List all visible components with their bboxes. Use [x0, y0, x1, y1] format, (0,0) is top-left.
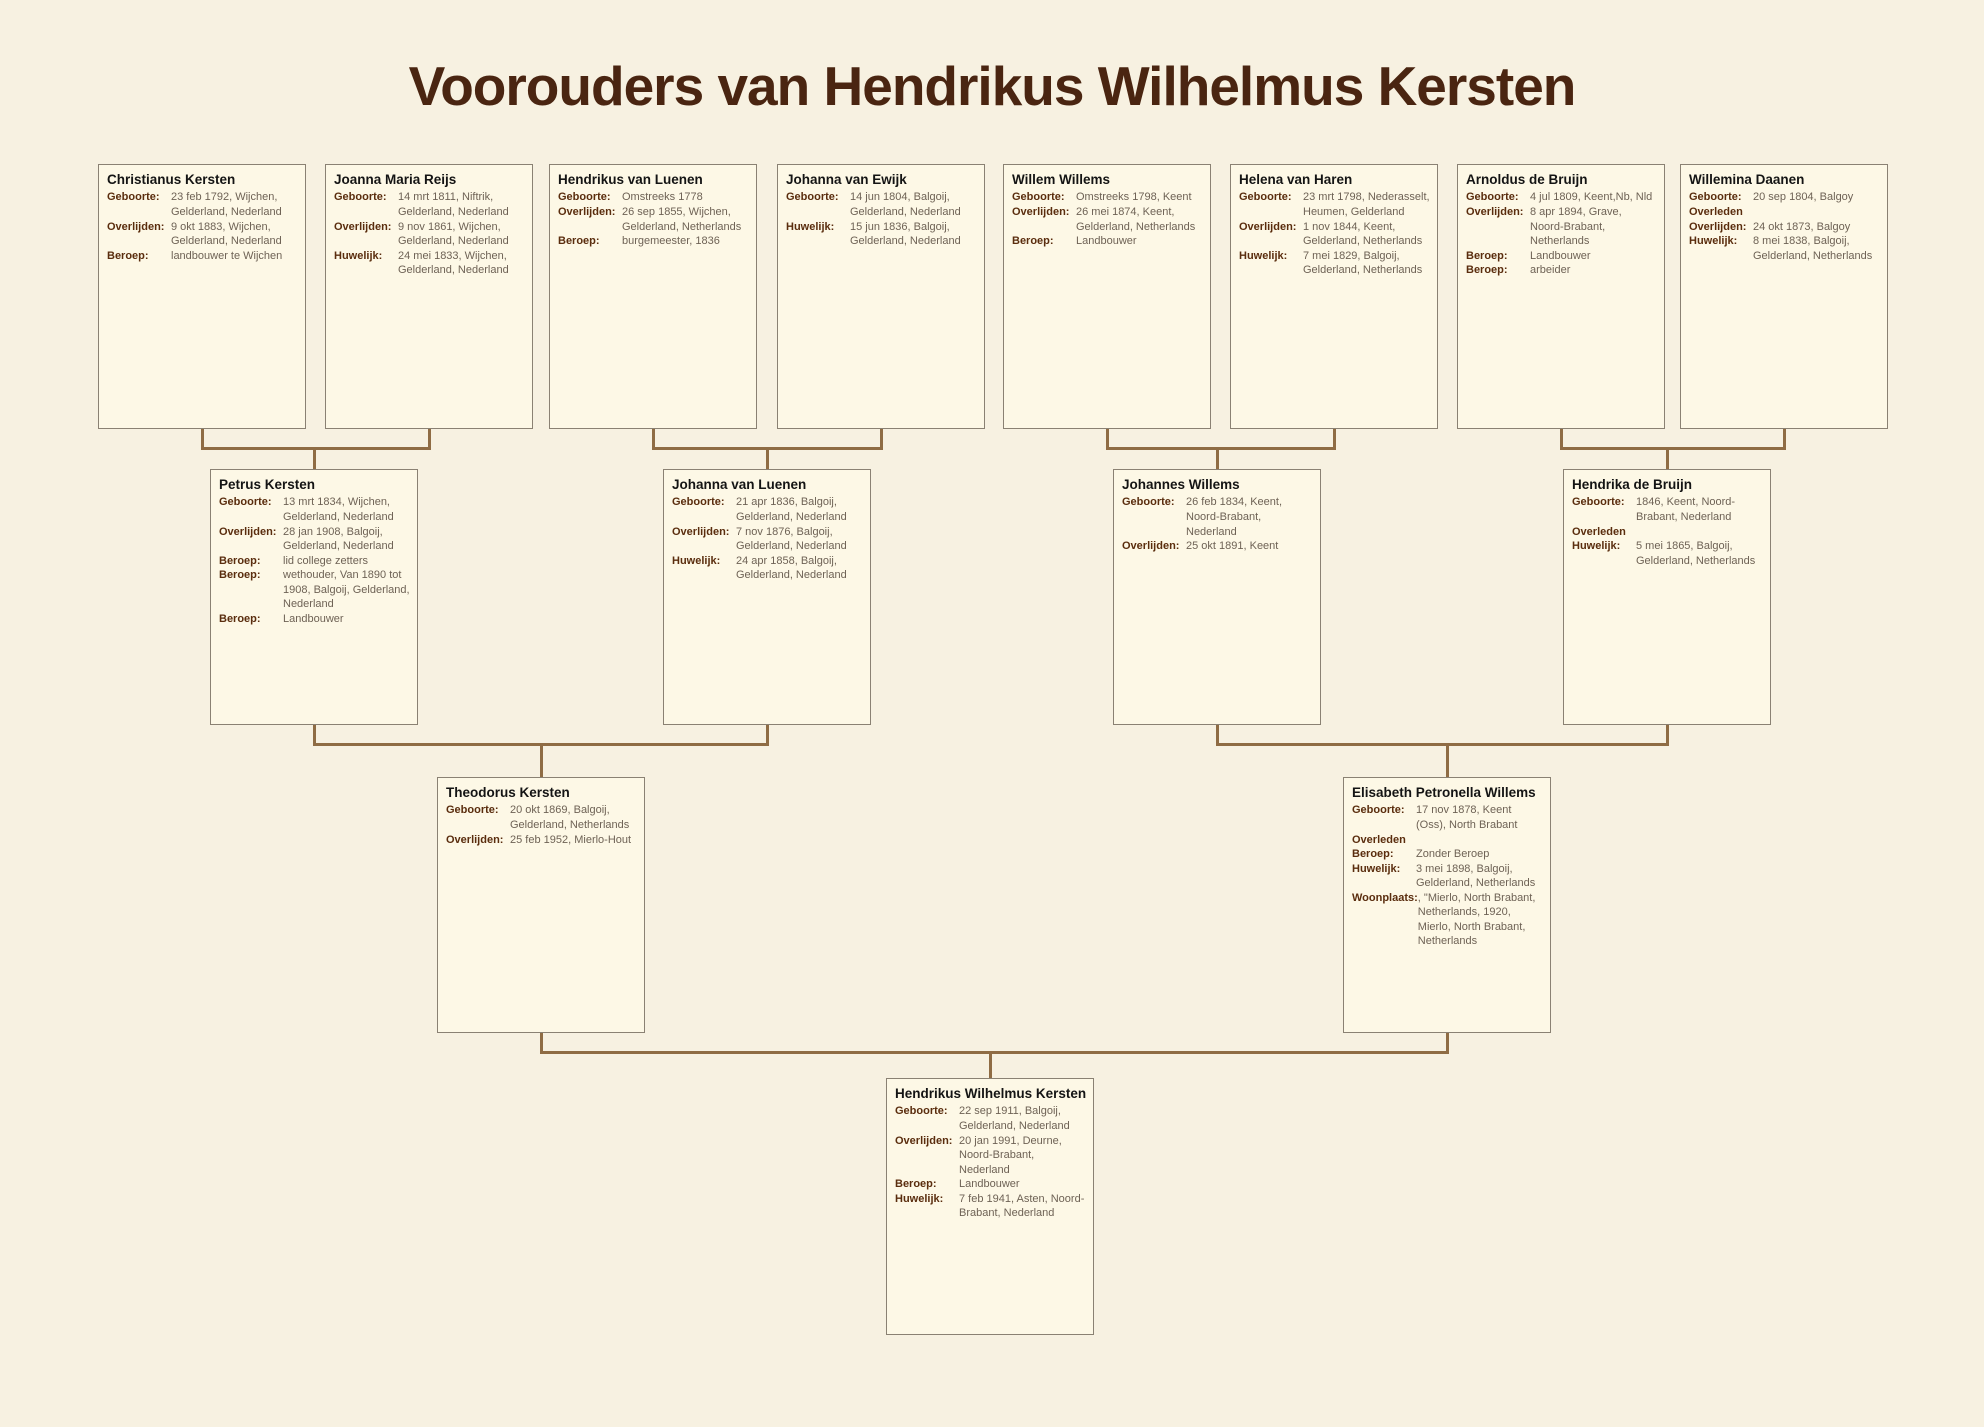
person-field-row: Huwelijk:5 mei 1865, Balgoij, Gelderland…	[1572, 539, 1764, 568]
field-value: 23 feb 1792, Wijchen, Gelderland, Nederl…	[171, 190, 299, 219]
person-box-elisabeth-petronella-willems[interactable]: Elisabeth Petronella Willems Geboorte:17…	[1343, 777, 1551, 1033]
person-field-row: Beroep:landbouwer te Wijchen	[107, 249, 299, 264]
connector-parent-stub	[1446, 1033, 1449, 1051]
field-value: 24 mei 1833, Wijchen, Gelderland, Nederl…	[398, 249, 526, 278]
person-box-joanna-maria-reijs[interactable]: Joanna Maria Reijs Geboorte:14 mrt 1811,…	[325, 164, 533, 429]
field-label: Huwelijk:	[1572, 539, 1636, 554]
person-fields: Geboorte:23 feb 1792, Wijchen, Gelderlan…	[107, 190, 299, 263]
person-field-row: Beroep:burgemeester, 1836	[558, 234, 750, 249]
person-box-hendrika-de-bruijn[interactable]: Hendrika de Bruijn Geboorte:1846, Keent,…	[1563, 469, 1771, 725]
person-field-row: Overlijden:25 okt 1891, Keent	[1122, 539, 1314, 554]
connector-parent-stub	[1216, 725, 1219, 743]
connector-parent-stub	[1666, 725, 1669, 743]
person-fields: Geboorte:20 sep 1804, BalgoyOverledenOve…	[1689, 190, 1881, 263]
person-field-row: Geboorte:14 mrt 1811, Niftrik, Gelderlan…	[334, 190, 526, 219]
person-name: Joanna Maria Reijs	[334, 172, 526, 188]
field-label: Geboorte:	[895, 1104, 959, 1119]
person-fields: Geboorte:14 jun 1804, Balgoij, Gelderlan…	[786, 190, 978, 248]
field-value: 20 okt 1869, Balgoij, Gelderland, Nether…	[510, 803, 638, 832]
connector-parent-stub	[880, 429, 883, 447]
field-label: Geboorte:	[1466, 190, 1530, 205]
field-value: 22 sep 1911, Balgoij, Gelderland, Nederl…	[959, 1104, 1087, 1133]
person-box-willem-willems[interactable]: Willem Willems Geboorte:Omstreeks 1798, …	[1003, 164, 1211, 429]
person-field-row: Overleden	[1352, 833, 1544, 848]
field-value: 3 mei 1898, Balgoij, Gelderland, Netherl…	[1416, 862, 1544, 891]
field-value: 28 jan 1908, Balgoij, Gelderland, Nederl…	[283, 525, 411, 554]
connector-bar	[540, 1051, 1449, 1054]
field-value: 26 feb 1834, Keent, Noord-Brabant, Neder…	[1186, 495, 1314, 539]
field-value: 14 jun 1804, Balgoij, Gelderland, Nederl…	[850, 190, 978, 219]
connector-bar	[1560, 447, 1786, 450]
field-label: Overlijden:	[1239, 220, 1303, 235]
person-name: Willem Willems	[1012, 172, 1204, 188]
person-field-row: Geboorte:13 mrt 1834, Wijchen, Gelderlan…	[219, 495, 411, 524]
person-field-row: Beroep:Landbouwer	[895, 1177, 1087, 1192]
person-fields: Geboorte:20 okt 1869, Balgoij, Gelderlan…	[446, 803, 638, 847]
connector-child-stub	[1446, 746, 1449, 777]
person-field-row: Beroep:arbeider	[1466, 263, 1658, 278]
field-value: Landbouwer	[1530, 249, 1658, 264]
person-field-row: Overlijden:1 nov 1844, Keent, Gelderland…	[1239, 220, 1431, 249]
person-field-row: Beroep:lid college zetters	[219, 554, 411, 569]
person-box-arnoldus-de-bruijn[interactable]: Arnoldus de Bruijn Geboorte:4 jul 1809, …	[1457, 164, 1665, 429]
field-value: , "Mierlo, North Brabant, Netherlands, 1…	[1418, 891, 1544, 949]
field-label: Geboorte:	[1012, 190, 1076, 205]
field-value: 1 nov 1844, Keent, Gelderland, Netherlan…	[1303, 220, 1431, 249]
person-field-row: Huwelijk:8 mei 1838, Balgoij, Gelderland…	[1689, 234, 1881, 263]
person-fields: Geboorte:Omstreeks 1778Overlijden:26 sep…	[558, 190, 750, 248]
connector-parent-stub	[1106, 429, 1109, 447]
person-field-row: Huwelijk:15 jun 1836, Balgoij, Gelderlan…	[786, 220, 978, 249]
field-label: Beroep:	[1012, 234, 1076, 249]
person-name: Theodorus Kersten	[446, 785, 638, 801]
connector-parent-stub	[313, 725, 316, 743]
person-field-row: Overlijden:9 nov 1861, Wijchen, Gelderla…	[334, 220, 526, 249]
field-value: 26 mei 1874, Keent, Gelderland, Netherla…	[1076, 205, 1204, 234]
person-field-row: Beroep:Landbouwer	[1012, 234, 1204, 249]
field-value: lid college zetters	[283, 554, 411, 569]
connector-parent-stub	[428, 429, 431, 447]
person-name: Willemina Daanen	[1689, 172, 1881, 188]
person-box-hendrikus-van-luenen[interactable]: Hendrikus van Luenen Geboorte:Omstreeks …	[549, 164, 757, 429]
person-field-row: Geboorte:23 feb 1792, Wijchen, Gelderlan…	[107, 190, 299, 219]
person-fields: Geboorte:4 jul 1809, Keent,Nb, NldOverli…	[1466, 190, 1658, 277]
field-label: Geboorte:	[334, 190, 398, 205]
field-value: 25 okt 1891, Keent	[1186, 539, 1314, 554]
person-box-willemina-daanen[interactable]: Willemina Daanen Geboorte:20 sep 1804, B…	[1680, 164, 1888, 429]
field-value: 1846, Keent, Noord-Brabant, Nederland	[1636, 495, 1764, 524]
page-title: Voorouders van Hendrikus Wilhelmus Kerst…	[0, 54, 1984, 118]
field-label: Overlijden:	[219, 525, 283, 540]
field-label: Overlijden:	[558, 205, 622, 220]
field-value: 7 nov 1876, Balgoij, Gelderland, Nederla…	[736, 525, 864, 554]
connector-child-stub	[540, 746, 543, 777]
field-label: Overleden	[1572, 525, 1636, 540]
person-fields: Geboorte:17 nov 1878, Keent (Oss), North…	[1352, 803, 1544, 948]
person-field-row: Overlijden:8 apr 1894, Grave, Noord-Brab…	[1466, 205, 1658, 249]
field-label: Beroep:	[107, 249, 171, 264]
connector-parent-stub	[652, 429, 655, 447]
person-field-row: Geboorte:20 okt 1869, Balgoij, Gelderlan…	[446, 803, 638, 832]
person-field-row: Huwelijk:7 feb 1941, Asten, Noord-Braban…	[895, 1192, 1087, 1221]
field-label: Overlijden:	[107, 220, 171, 235]
person-name: Petrus Kersten	[219, 477, 411, 493]
person-fields: Geboorte:13 mrt 1834, Wijchen, Gelderlan…	[219, 495, 411, 626]
person-field-row: Huwelijk:24 apr 1858, Balgoij, Gelderlan…	[672, 554, 864, 583]
person-field-row: Geboorte:Omstreeks 1798, Keent	[1012, 190, 1204, 205]
field-value: 21 apr 1836, Balgoij, Gelderland, Nederl…	[736, 495, 864, 524]
person-box-christianus-kersten[interactable]: Christianus Kersten Geboorte:23 feb 1792…	[98, 164, 306, 429]
field-value: 9 nov 1861, Wijchen, Gelderland, Nederla…	[398, 220, 526, 249]
connector-parent-stub	[1783, 429, 1786, 447]
field-label: Overlijden:	[1466, 205, 1530, 220]
person-field-row: Overlijden:20 jan 1991, Deurne, Noord-Br…	[895, 1134, 1087, 1178]
person-name: Hendrikus Wilhelmus Kersten	[895, 1086, 1087, 1102]
connector-child-stub	[1216, 450, 1219, 469]
field-value: 13 mrt 1834, Wijchen, Gelderland, Nederl…	[283, 495, 411, 524]
field-value: 17 nov 1878, Keent (Oss), North Brabant	[1416, 803, 1544, 832]
field-label: Huwelijk:	[786, 220, 850, 235]
field-label: Geboorte:	[219, 495, 283, 510]
field-label: Geboorte:	[1572, 495, 1636, 510]
person-box-theodorus-kersten[interactable]: Theodorus Kersten Geboorte:20 okt 1869, …	[437, 777, 645, 1033]
field-value: 8 mei 1838, Balgoij, Gelderland, Netherl…	[1753, 234, 1881, 263]
ancestor-chart: Voorouders van Hendrikus Wilhelmus Kerst…	[0, 0, 1984, 1427]
field-label: Huwelijk:	[1689, 234, 1753, 249]
person-fields: Geboorte:21 apr 1836, Balgoij, Gelderlan…	[672, 495, 864, 582]
person-name: Arnoldus de Bruijn	[1466, 172, 1658, 188]
person-box-johanna-van-luenen[interactable]: Johanna van Luenen Geboorte:21 apr 1836,…	[663, 469, 871, 725]
person-field-row: Overlijden:26 mei 1874, Keent, Gelderlan…	[1012, 205, 1204, 234]
person-field-row: Overlijden:7 nov 1876, Balgoij, Gelderla…	[672, 525, 864, 554]
field-value: 24 okt 1873, Balgoy	[1753, 220, 1881, 235]
person-fields: Geboorte:1846, Keent, Noord-Brabant, Ned…	[1572, 495, 1764, 568]
field-label: Overlijden:	[446, 833, 510, 848]
person-box-petrus-kersten[interactable]: Petrus Kersten Geboorte:13 mrt 1834, Wij…	[210, 469, 418, 725]
connector-bar	[1106, 447, 1336, 450]
person-field-row: Overlijden:26 sep 1855, Wijchen, Gelderl…	[558, 205, 750, 234]
field-value: 23 mrt 1798, Nederasselt, Heumen, Gelder…	[1303, 190, 1431, 219]
field-label: Overlijden:	[334, 220, 398, 235]
person-field-row: Geboorte:1846, Keent, Noord-Brabant, Ned…	[1572, 495, 1764, 524]
person-fields: Geboorte:22 sep 1911, Balgoij, Gelderlan…	[895, 1104, 1087, 1220]
person-name: Johanna van Ewijk	[786, 172, 978, 188]
field-label: Beroep:	[895, 1177, 959, 1192]
field-value: landbouwer te Wijchen	[171, 249, 299, 264]
field-value: 26 sep 1855, Wijchen, Gelderland, Nether…	[622, 205, 750, 234]
person-fields: Geboorte:14 mrt 1811, Niftrik, Gelderlan…	[334, 190, 526, 277]
field-label: Geboorte:	[1122, 495, 1186, 510]
person-field-row: Overlijden:24 okt 1873, Balgoy	[1689, 220, 1881, 235]
field-label: Geboorte:	[558, 190, 622, 205]
person-field-row: Geboorte:Omstreeks 1778	[558, 190, 750, 205]
person-box-johannes-willems[interactable]: Johannes Willems Geboorte:26 feb 1834, K…	[1113, 469, 1321, 725]
field-label: Beroep:	[1352, 847, 1416, 862]
field-value: burgemeester, 1836	[622, 234, 750, 249]
field-value: 20 jan 1991, Deurne, Noord-Brabant, Nede…	[959, 1134, 1087, 1178]
field-label: Beroep:	[1466, 249, 1530, 264]
person-name: Johannes Willems	[1122, 477, 1314, 493]
connector-parent-stub	[540, 1033, 543, 1051]
person-field-row: Geboorte:21 apr 1836, Balgoij, Gelderlan…	[672, 495, 864, 524]
person-field-row: Huwelijk:7 mei 1829, Balgoij, Gelderland…	[1239, 249, 1431, 278]
field-label: Geboorte:	[1689, 190, 1753, 205]
field-value: Landbouwer	[283, 612, 411, 627]
field-value: 25 feb 1952, Mierlo-Hout	[510, 833, 638, 848]
person-field-row: Geboorte:14 jun 1804, Balgoij, Gelderlan…	[786, 190, 978, 219]
field-label: Geboorte:	[1352, 803, 1416, 818]
field-label: Woonplaats:	[1352, 891, 1418, 906]
field-label: Overlijden:	[672, 525, 736, 540]
person-field-row: Huwelijk:24 mei 1833, Wijchen, Gelderlan…	[334, 249, 526, 278]
person-name: Elisabeth Petronella Willems	[1352, 785, 1544, 801]
field-value: Omstreeks 1778	[622, 190, 750, 205]
field-label: Beroep:	[219, 568, 283, 583]
person-field-row: Geboorte:22 sep 1911, Balgoij, Gelderlan…	[895, 1104, 1087, 1133]
person-field-row: Geboorte:26 feb 1834, Keent, Noord-Braba…	[1122, 495, 1314, 539]
field-label: Beroep:	[558, 234, 622, 249]
person-field-row: Overleden	[1689, 205, 1881, 220]
connector-child-stub	[989, 1054, 992, 1078]
connector-child-stub	[766, 450, 769, 469]
person-name: Helena van Haren	[1239, 172, 1431, 188]
field-value: 5 mei 1865, Balgoij, Gelderland, Netherl…	[1636, 539, 1764, 568]
field-value: Landbouwer	[959, 1177, 1087, 1192]
field-value: wethouder, Van 1890 tot 1908, Balgoij, G…	[283, 568, 411, 612]
field-value: 14 mrt 1811, Niftrik, Gelderland, Nederl…	[398, 190, 526, 219]
connector-child-stub	[313, 450, 316, 469]
person-box-hendrikus-wilhelmus-kersten[interactable]: Hendrikus Wilhelmus Kersten Geboorte:22 …	[886, 1078, 1094, 1335]
field-label: Geboorte:	[446, 803, 510, 818]
field-value: 7 mei 1829, Balgoij, Gelderland, Netherl…	[1303, 249, 1431, 278]
person-field-row: Overlijden:25 feb 1952, Mierlo-Hout	[446, 833, 638, 848]
person-field-row: Woonplaats:, "Mierlo, North Brabant, Net…	[1352, 891, 1544, 949]
field-value: arbeider	[1530, 263, 1658, 278]
field-value: Zonder Beroep	[1416, 847, 1544, 862]
person-fields: Geboorte:23 mrt 1798, Nederasselt, Heume…	[1239, 190, 1431, 277]
field-label: Huwelijk:	[895, 1192, 959, 1207]
person-name: Hendrikus van Luenen	[558, 172, 750, 188]
person-field-row: Overleden	[1572, 525, 1764, 540]
connector-parent-stub	[1333, 429, 1336, 447]
field-label: Beroep:	[1466, 263, 1530, 278]
field-value: 15 jun 1836, Balgoij, Gelderland, Nederl…	[850, 220, 978, 249]
field-label: Overlijden:	[1012, 205, 1076, 220]
field-label: Geboorte:	[786, 190, 850, 205]
field-value: 24 apr 1858, Balgoij, Gelderland, Nederl…	[736, 554, 864, 583]
field-label: Overlijden:	[895, 1134, 959, 1149]
field-value: 9 okt 1883, Wijchen, Gelderland, Nederla…	[171, 220, 299, 249]
field-label: Overlijden:	[1689, 220, 1753, 235]
person-field-row: Geboorte:17 nov 1878, Keent (Oss), North…	[1352, 803, 1544, 832]
person-field-row: Overlijden:28 jan 1908, Balgoij, Gelderl…	[219, 525, 411, 554]
person-field-row: Geboorte:20 sep 1804, Balgoy	[1689, 190, 1881, 205]
connector-parent-stub	[201, 429, 204, 447]
field-value: 8 apr 1894, Grave, Noord-Brabant, Nether…	[1530, 205, 1658, 249]
person-box-helena-van-haren[interactable]: Helena van Haren Geboorte:23 mrt 1798, N…	[1230, 164, 1438, 429]
person-field-row: Beroep:wethouder, Van 1890 tot 1908, Bal…	[219, 568, 411, 612]
field-value: 7 feb 1941, Asten, Noord-Brabant, Nederl…	[959, 1192, 1087, 1221]
field-label: Beroep:	[219, 554, 283, 569]
person-field-row: Beroep:Landbouwer	[1466, 249, 1658, 264]
connector-child-stub	[1666, 450, 1669, 469]
person-name: Christianus Kersten	[107, 172, 299, 188]
field-label: Geboorte:	[672, 495, 736, 510]
field-label: Huwelijk:	[1239, 249, 1303, 264]
person-field-row: Overlijden:9 okt 1883, Wijchen, Gelderla…	[107, 220, 299, 249]
field-label: Huwelijk:	[334, 249, 398, 264]
field-label: Overlijden:	[1122, 539, 1186, 554]
person-field-row: Beroep:Landbouwer	[219, 612, 411, 627]
person-name: Hendrika de Bruijn	[1572, 477, 1764, 493]
field-value: Landbouwer	[1076, 234, 1204, 249]
field-label: Beroep:	[219, 612, 283, 627]
field-value: 20 sep 1804, Balgoy	[1753, 190, 1881, 205]
connector-parent-stub	[1560, 429, 1563, 447]
field-value: 4 jul 1809, Keent,Nb, Nld	[1530, 190, 1658, 205]
person-field-row: Huwelijk:3 mei 1898, Balgoij, Gelderland…	[1352, 862, 1544, 891]
connector-bar	[1216, 743, 1669, 746]
field-label: Geboorte:	[107, 190, 171, 205]
connector-bar	[201, 447, 431, 450]
field-label: Huwelijk:	[1352, 862, 1416, 877]
person-name: Johanna van Luenen	[672, 477, 864, 493]
person-fields: Geboorte:26 feb 1834, Keent, Noord-Braba…	[1122, 495, 1314, 553]
field-label: Overleden	[1352, 833, 1416, 848]
field-value: Omstreeks 1798, Keent	[1076, 190, 1204, 205]
field-label: Huwelijk:	[672, 554, 736, 569]
connector-parent-stub	[766, 725, 769, 743]
person-field-row: Geboorte:23 mrt 1798, Nederasselt, Heume…	[1239, 190, 1431, 219]
field-label: Overleden	[1689, 205, 1753, 220]
person-field-row: Beroep:Zonder Beroep	[1352, 847, 1544, 862]
person-fields: Geboorte:Omstreeks 1798, KeentOverlijden…	[1012, 190, 1204, 248]
person-field-row: Geboorte:4 jul 1809, Keent,Nb, Nld	[1466, 190, 1658, 205]
person-box-johanna-van-ewijk[interactable]: Johanna van Ewijk Geboorte:14 jun 1804, …	[777, 164, 985, 429]
field-label: Geboorte:	[1239, 190, 1303, 205]
